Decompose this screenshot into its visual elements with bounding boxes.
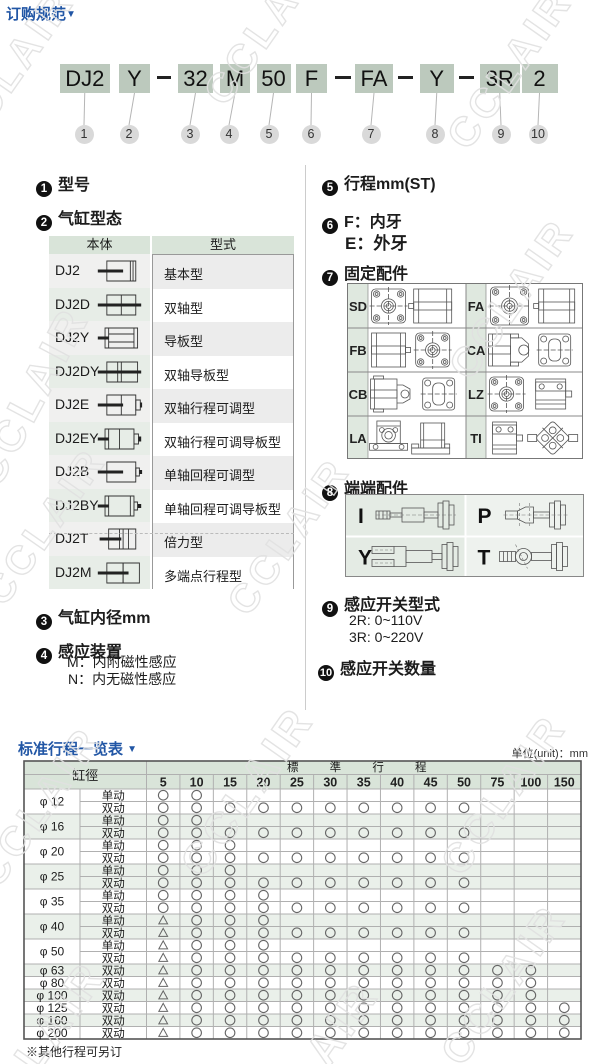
svg-text:100: 100 (520, 775, 541, 789)
svg-text:φ 20: φ 20 (40, 845, 65, 859)
svg-text:150: 150 (554, 775, 575, 789)
svg-text:15: 15 (223, 775, 237, 789)
svg-text:φ 12: φ 12 (40, 795, 65, 809)
svg-text:缸徑: 缸徑 (72, 768, 98, 783)
svg-text:双动: 双动 (102, 1014, 125, 1027)
svg-text:30: 30 (323, 775, 337, 789)
svg-text:双动: 双动 (102, 952, 125, 965)
svg-text:φ 50: φ 50 (40, 945, 65, 959)
svg-text:单动: 单动 (102, 814, 125, 827)
svg-text:10: 10 (190, 775, 204, 789)
svg-text:双动: 双动 (102, 1027, 125, 1040)
svg-text:双动: 双动 (102, 989, 125, 1002)
svg-text:单动: 单动 (102, 914, 125, 927)
svg-text:双动: 双动 (102, 1002, 125, 1015)
svg-text:φ 35: φ 35 (40, 895, 65, 909)
svg-text:20: 20 (257, 775, 271, 789)
svg-text:双动: 双动 (102, 902, 125, 915)
svg-text:双动: 双动 (102, 877, 125, 890)
svg-text:双动: 双动 (102, 852, 125, 865)
svg-text:35: 35 (357, 775, 371, 789)
svg-text:单动: 单动 (102, 864, 125, 877)
svg-text:单动: 单动 (102, 889, 125, 902)
svg-text:φ 16: φ 16 (40, 820, 65, 834)
svg-text:双动: 双动 (102, 964, 125, 977)
svg-text:25: 25 (290, 775, 304, 789)
svg-text:40: 40 (390, 775, 404, 789)
svg-text:φ 25: φ 25 (40, 870, 65, 884)
svg-text:双动: 双动 (102, 802, 125, 815)
svg-text:50: 50 (457, 775, 471, 789)
svg-text:双动: 双动 (102, 827, 125, 840)
svg-text:φ 40: φ 40 (40, 920, 65, 934)
svg-text:標 準 行 程: 標 準 行 程 (287, 760, 441, 774)
svg-text:45: 45 (424, 775, 438, 789)
svg-text:双动: 双动 (102, 927, 125, 940)
svg-text:双动: 双动 (102, 977, 125, 990)
svg-text:单动: 单动 (102, 789, 125, 802)
svg-text:单动: 单动 (102, 839, 125, 852)
svg-text:75: 75 (490, 775, 504, 789)
svg-text:单动: 单动 (102, 939, 125, 952)
svg-text:5: 5 (160, 775, 167, 789)
svg-text:φ 200: φ 200 (36, 1026, 67, 1040)
